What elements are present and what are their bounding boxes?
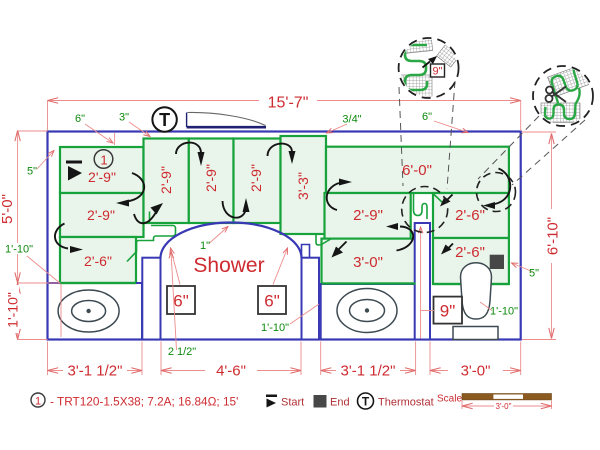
svg-text:- TRT120-1.5X38; 7.2A; 16.84Ω;: - TRT120-1.5X38; 7.2A; 16.84Ω; 15'	[50, 395, 238, 409]
svg-text:1: 1	[35, 396, 41, 408]
svg-text:3'-0": 3'-0"	[461, 363, 491, 380]
svg-text:End: End	[330, 397, 350, 409]
svg-text:5": 5"	[529, 268, 539, 280]
svg-text:1'-10": 1'-10"	[5, 244, 33, 256]
svg-text:3/4": 3/4"	[342, 114, 361, 126]
svg-text:15'-7": 15'-7"	[268, 95, 309, 112]
svg-text:1'-10": 1'-10"	[490, 306, 518, 318]
svg-text:1: 1	[100, 153, 107, 168]
svg-text:3'-3": 3'-3"	[295, 172, 311, 200]
svg-text:2'-9": 2'-9"	[88, 169, 116, 185]
svg-text:2'-9": 2'-9"	[353, 207, 383, 224]
svg-text:3'-1 1/2": 3'-1 1/2"	[68, 363, 123, 380]
svg-text:Start: Start	[281, 397, 304, 409]
svg-text:9": 9"	[440, 302, 456, 321]
svg-text:Thermostat: Thermostat	[378, 397, 434, 409]
svg-text:2'-6": 2'-6"	[455, 244, 485, 261]
svg-text:6'-0": 6'-0"	[402, 162, 432, 179]
svg-text:3'-0": 3'-0"	[353, 254, 383, 271]
svg-text:T: T	[362, 395, 370, 409]
svg-text:1'-10": 1'-10"	[261, 322, 289, 334]
svg-text:2'-9": 2'-9"	[158, 166, 174, 194]
svg-text:9": 9"	[432, 66, 442, 78]
svg-text:2'-9": 2'-9"	[87, 207, 115, 223]
svg-text:T: T	[159, 110, 170, 130]
svg-text:6'-10": 6'-10"	[545, 217, 562, 255]
svg-text:1'-10": 1'-10"	[5, 292, 21, 328]
svg-text:Scale: Scale	[437, 394, 462, 405]
svg-text:Shower: Shower	[193, 254, 264, 277]
svg-text:5'-0": 5'-0"	[0, 194, 16, 224]
svg-text:6": 6"	[75, 113, 85, 125]
svg-text:2'-6": 2'-6"	[84, 253, 112, 269]
svg-text:2'-9": 2'-9"	[248, 164, 264, 192]
svg-text:6": 6"	[173, 292, 189, 311]
svg-text:3": 3"	[119, 112, 129, 124]
svg-text:1": 1"	[200, 240, 210, 252]
svg-text:3'-0": 3'-0"	[496, 402, 512, 411]
svg-text:2'-6": 2'-6"	[455, 207, 485, 224]
svg-text:3'-1 1/2": 3'-1 1/2"	[341, 363, 396, 380]
svg-text:6": 6"	[264, 292, 280, 311]
svg-text:2'-9": 2'-9"	[203, 164, 219, 192]
svg-text:6": 6"	[422, 111, 432, 123]
svg-text:4'-6": 4'-6"	[216, 363, 246, 380]
svg-text:2 1/2": 2 1/2"	[168, 346, 196, 358]
svg-text:5": 5"	[27, 166, 37, 178]
